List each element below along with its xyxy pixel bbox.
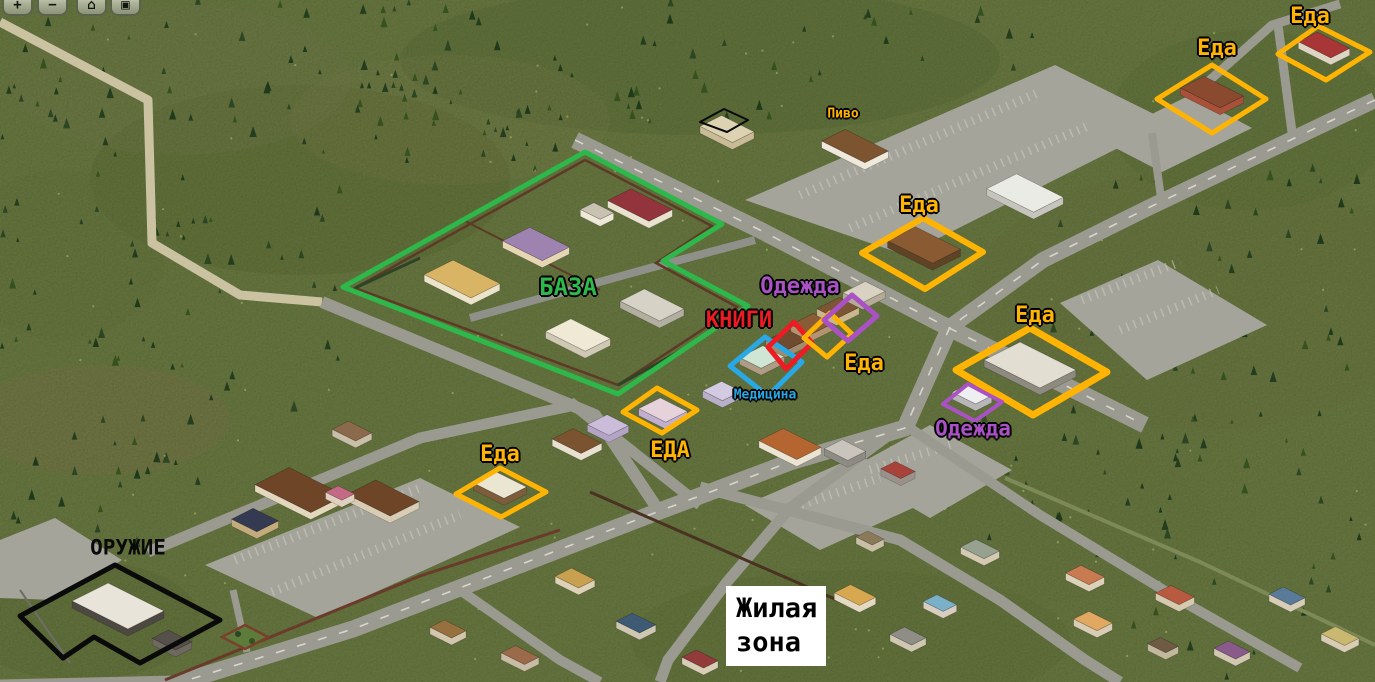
zoom-in-icon: +	[13, 0, 21, 13]
zoom-in-button[interactable]: +	[2, 0, 33, 16]
save-button[interactable]: ▣	[110, 0, 141, 16]
zoom-out-icon: −	[48, 0, 56, 13]
game-map[interactable]	[0, 0, 1375, 682]
save-icon: ▣	[121, 0, 129, 13]
map-viewport[interactable]: ЕдаЕдаПивоЕдаБАЗАОдеждаКНИГИЕдаМедицинаЕ…	[0, 0, 1375, 682]
home-button[interactable]: ⌂	[76, 0, 107, 16]
home-icon: ⌂	[87, 0, 95, 13]
zoom-out-button[interactable]: −	[37, 0, 68, 16]
